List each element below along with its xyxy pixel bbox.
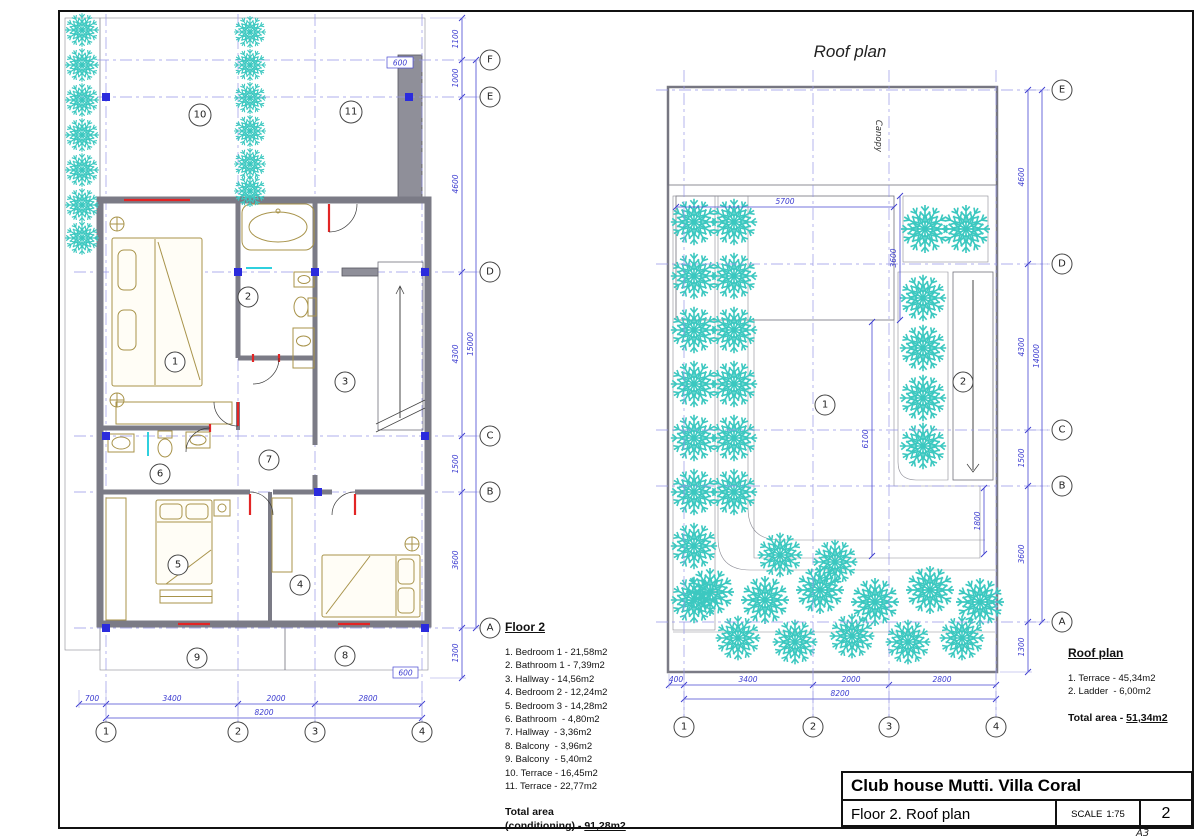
svg-text:1500: 1500: [1017, 448, 1026, 467]
legend-item: 1. Bedroom 1 - 21,58m2: [505, 646, 685, 659]
svg-text:1300: 1300: [1017, 637, 1026, 656]
svg-text:3400: 3400: [162, 694, 181, 703]
svg-text:E: E: [487, 92, 493, 103]
svg-text:B: B: [1059, 481, 1066, 492]
svg-text:4300: 4300: [451, 344, 460, 363]
sheet-number: 2: [1139, 801, 1191, 827]
svg-text:1300: 1300: [451, 643, 460, 662]
svg-text:4600: 4600: [451, 174, 460, 193]
svg-text:14000: 14000: [1032, 344, 1041, 368]
paper-format-label: A3: [1136, 828, 1149, 839]
svg-text:A: A: [1059, 617, 1066, 628]
svg-text:11: 11: [345, 107, 358, 118]
svg-text:5700: 5700: [775, 197, 794, 206]
roof-canopy: Canopy: [668, 87, 997, 185]
svg-text:3: 3: [312, 727, 318, 738]
svg-text:6100: 6100: [861, 429, 870, 448]
svg-text:4: 4: [419, 727, 425, 738]
roof-total-area: Total area - 51,34m2: [1068, 711, 1193, 725]
svg-text:2000: 2000: [841, 675, 860, 684]
svg-text:F: F: [487, 55, 493, 66]
svg-text:2800: 2800: [932, 675, 951, 684]
legend-item: 6. Bathroom - 4,80m2: [505, 713, 685, 726]
svg-text:2: 2: [810, 722, 816, 733]
svg-text:8: 8: [342, 651, 348, 662]
scale-value: 1:75: [1106, 809, 1125, 820]
legend-item: 1. Terrace - 45,34m2: [1068, 672, 1193, 685]
floor2-bathroom1-fixtures: [242, 204, 316, 368]
legend-item: 7. Hallway - 3,36m2: [505, 726, 685, 739]
roof-plan-drawing: Roof plan Canopy: [650, 30, 1100, 770]
floor2-legend: Floor 2 1. Bedroom 1 - 21,58m2 2. Bathro…: [505, 620, 685, 833]
svg-text:4: 4: [297, 580, 303, 591]
legend-item: 4. Bedroom 2 - 12,24m2: [505, 686, 685, 699]
floor2-bedroom2-furniture: [272, 498, 420, 617]
svg-text:2: 2: [960, 377, 966, 388]
svg-text:2800: 2800: [358, 694, 377, 703]
floor2-plan-drawing: 1100 1000 4600 4300 1500 3600 1300 15000…: [60, 10, 510, 775]
floor2-terrace-deck: [100, 18, 425, 203]
svg-text:600: 600: [398, 669, 413, 678]
svg-text:600: 600: [393, 59, 408, 68]
floor2-bathroom2-fixtures: [108, 431, 210, 457]
floor2-bedroom1-furniture: [110, 217, 232, 424]
svg-text:3600: 3600: [1017, 544, 1026, 563]
svg-text:2: 2: [245, 292, 251, 303]
svg-text:3: 3: [342, 377, 348, 388]
svg-text:1100: 1100: [451, 29, 460, 48]
svg-text:C: C: [1059, 425, 1066, 436]
floor2-bedroom3-furniture: [106, 498, 230, 620]
svg-text:1: 1: [822, 400, 828, 411]
svg-text:C: C: [487, 431, 494, 442]
legend-item: 10. Terrace - 16,45m2: [505, 767, 685, 780]
svg-text:4600: 4600: [1017, 167, 1026, 186]
scale-label: SCALE: [1071, 809, 1102, 820]
legend-item: 2. Bathroom 1 - 7,39m2: [505, 659, 685, 672]
svg-text:2: 2: [235, 727, 241, 738]
svg-text:3400: 3400: [738, 675, 757, 684]
svg-text:4: 4: [993, 722, 999, 733]
svg-text:1800: 1800: [973, 511, 982, 530]
svg-text:1: 1: [103, 727, 109, 738]
svg-text:1500: 1500: [451, 454, 460, 473]
svg-text:9: 9: [194, 653, 200, 664]
roof-walkway: [673, 196, 995, 632]
svg-text:1000: 1000: [451, 68, 460, 87]
svg-text:3600: 3600: [889, 248, 898, 267]
svg-text:D: D: [1058, 259, 1066, 270]
svg-text:E: E: [1059, 85, 1065, 96]
svg-text:5: 5: [175, 560, 181, 571]
svg-text:6: 6: [157, 469, 163, 480]
roof-legend: Roof plan 1. Terrace - 45,34m2 2. Ladder…: [1068, 646, 1193, 725]
legend-item: 3. Hallway - 14,56m2: [505, 673, 685, 686]
legend-item: 8. Balcony - 3,96m2: [505, 740, 685, 753]
svg-text:10: 10: [194, 110, 207, 121]
title-block: Club house Mutti. Villa Coral Floor 2. R…: [841, 771, 1193, 827]
floor2-stairs: [376, 262, 425, 432]
svg-text:700: 700: [85, 694, 100, 703]
legend-item: 5. Bedroom 3 - 14,28m2: [505, 700, 685, 713]
floor2-balcony-deck: [100, 624, 428, 670]
sheet-title: Floor 2. Roof plan: [843, 801, 1055, 827]
floor2-grid-bubbles: F E D C B A 1 2 3 4: [96, 50, 500, 742]
svg-text:3600: 3600: [451, 550, 460, 569]
svg-text:7: 7: [266, 455, 272, 466]
floor2-legend-heading: Floor 2: [505, 620, 685, 634]
legend-item: 11. Terrace - 22,77m2: [505, 780, 685, 793]
svg-text:15000: 15000: [466, 332, 475, 356]
roof-plants: [671, 199, 1004, 665]
svg-text:4300: 4300: [1017, 337, 1026, 356]
svg-text:A: A: [487, 623, 494, 634]
svg-text:B: B: [487, 487, 494, 498]
svg-text:2000: 2000: [266, 694, 285, 703]
svg-text:3: 3: [886, 722, 892, 733]
roof-plan-title: Roof plan: [814, 42, 887, 61]
project-name: Club house Mutti. Villa Coral: [843, 773, 1191, 801]
legend-item: 2. Ladder - 6,00m2: [1068, 685, 1193, 698]
svg-text:1: 1: [172, 357, 178, 368]
svg-text:8200: 8200: [830, 689, 849, 698]
svg-text:Canopy: Canopy: [873, 120, 883, 153]
roof-upper-deck: [676, 196, 894, 320]
legend-item: 9. Balcony - 5,40m2: [505, 753, 685, 766]
floor2-total-area: Total area (conditioning) - 91,28m2: [505, 805, 685, 833]
svg-text:D: D: [486, 267, 494, 278]
roof-legend-heading: Roof plan: [1068, 646, 1193, 660]
svg-text:8200: 8200: [254, 708, 273, 717]
drawing-sheet: 1100 1000 4600 4300 1500 3600 1300 15000…: [0, 0, 1200, 840]
scale-cell: SCALE 1:75: [1055, 801, 1139, 827]
